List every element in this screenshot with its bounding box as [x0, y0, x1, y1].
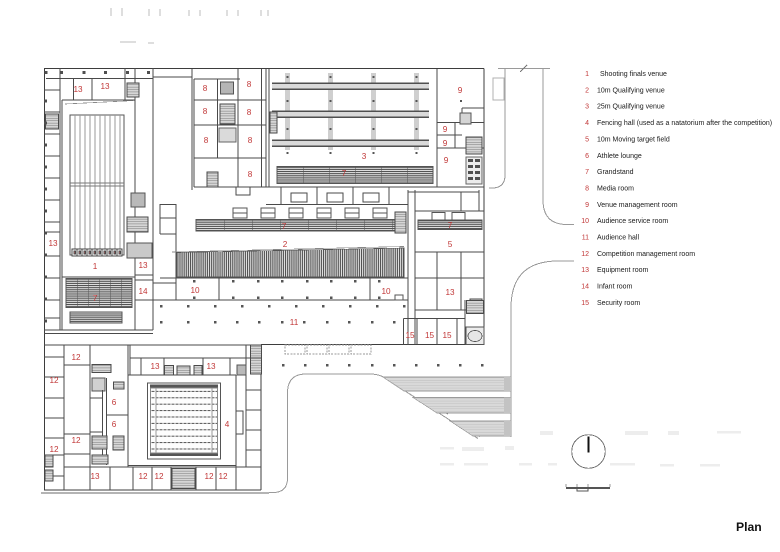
- svg-text:Plan: Plan: [736, 520, 762, 534]
- svg-text:12: 12: [71, 436, 81, 445]
- svg-text:5: 5: [585, 136, 589, 143]
- svg-text:10: 10: [581, 218, 589, 225]
- svg-text:15: 15: [442, 331, 452, 340]
- svg-text:8: 8: [203, 107, 208, 116]
- svg-text:8: 8: [247, 80, 252, 89]
- svg-text:7: 7: [282, 222, 287, 231]
- svg-text:13: 13: [445, 288, 455, 297]
- svg-text:7: 7: [93, 294, 98, 303]
- svg-text:4: 4: [225, 420, 230, 429]
- svg-text:12: 12: [204, 472, 214, 481]
- svg-text:12: 12: [581, 251, 589, 258]
- svg-text:Audience service room: Audience service room: [597, 218, 668, 225]
- svg-text:10m Moving target field: 10m Moving target field: [597, 136, 670, 143]
- svg-text:9: 9: [444, 156, 449, 165]
- svg-text:13: 13: [581, 267, 589, 274]
- svg-text:6: 6: [112, 420, 117, 429]
- svg-text:8: 8: [247, 108, 252, 117]
- svg-text:5: 5: [448, 240, 453, 249]
- svg-text:12: 12: [71, 353, 81, 362]
- svg-text:13: 13: [150, 362, 160, 371]
- svg-text:8: 8: [248, 136, 253, 145]
- svg-text:15: 15: [425, 331, 435, 340]
- svg-text:9: 9: [443, 125, 448, 134]
- svg-text:Infant room: Infant room: [597, 284, 633, 291]
- svg-text:13: 13: [100, 82, 110, 91]
- svg-text:10m Qualifying venue: 10m Qualifying venue: [597, 87, 665, 94]
- svg-text:13: 13: [73, 85, 83, 94]
- svg-text:Venue management room: Venue management room: [597, 202, 678, 209]
- svg-text:Athlete lounge: Athlete lounge: [597, 153, 642, 160]
- svg-text:14: 14: [138, 287, 148, 296]
- svg-text:12: 12: [138, 472, 148, 481]
- svg-text:3: 3: [362, 152, 367, 161]
- svg-text:10: 10: [190, 286, 200, 295]
- svg-text:2: 2: [283, 240, 288, 249]
- svg-text:9: 9: [585, 202, 589, 209]
- svg-text:8: 8: [203, 84, 208, 93]
- svg-text:7: 7: [448, 221, 453, 230]
- svg-text:11: 11: [290, 318, 299, 327]
- svg-text:Fencing hall (used as a natato: Fencing hall (used as a natatorium after…: [597, 120, 772, 127]
- svg-text:4: 4: [585, 120, 589, 127]
- svg-text:1: 1: [93, 262, 98, 271]
- svg-text:Competition management room: Competition management room: [597, 251, 695, 258]
- svg-text:13: 13: [48, 239, 58, 248]
- svg-text:1: 1: [585, 71, 589, 78]
- svg-text:8: 8: [585, 186, 589, 193]
- svg-text:14: 14: [581, 284, 589, 291]
- svg-text:Shooting finals venue: Shooting finals venue: [600, 71, 667, 78]
- svg-text:Audience hall: Audience hall: [597, 235, 639, 242]
- svg-text:11: 11: [582, 235, 589, 242]
- svg-text:7: 7: [342, 169, 347, 178]
- svg-text:15: 15: [581, 300, 589, 307]
- svg-text:12: 12: [218, 472, 228, 481]
- svg-text:3: 3: [585, 104, 589, 111]
- svg-text:25m Qualifying venue: 25m Qualifying venue: [597, 104, 665, 111]
- svg-text:6: 6: [585, 153, 589, 160]
- svg-text:10: 10: [381, 287, 391, 296]
- svg-text:Grandstand: Grandstand: [597, 169, 634, 176]
- svg-text:12: 12: [49, 445, 59, 454]
- svg-text:7: 7: [585, 169, 589, 176]
- svg-text:6: 6: [112, 398, 117, 407]
- svg-text:9: 9: [443, 139, 448, 148]
- svg-text:Media room: Media room: [597, 186, 634, 193]
- svg-text:2: 2: [585, 87, 589, 94]
- svg-text:13: 13: [206, 362, 216, 371]
- svg-text:12: 12: [49, 376, 59, 385]
- svg-text:13: 13: [138, 261, 148, 270]
- svg-text:8: 8: [248, 170, 253, 179]
- svg-text:8: 8: [204, 136, 209, 145]
- svg-text:15: 15: [405, 331, 415, 340]
- svg-text:9: 9: [458, 86, 463, 95]
- svg-text:Equipment room: Equipment room: [597, 267, 649, 274]
- svg-text:12: 12: [154, 472, 164, 481]
- svg-text:13: 13: [90, 472, 100, 481]
- svg-text:Security room: Security room: [597, 300, 640, 307]
